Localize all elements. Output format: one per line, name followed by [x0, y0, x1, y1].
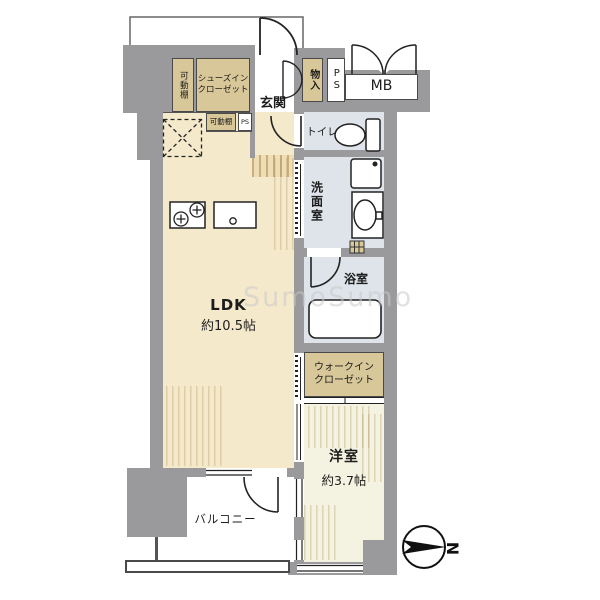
label-shoe-closet-line2: クローゼット: [197, 85, 248, 95]
wall-toilet-top: [294, 105, 390, 112]
label-western: 洋室: [304, 448, 384, 468]
label-washroom: 洗面室: [306, 162, 326, 242]
compass: [402, 526, 446, 568]
ldk-hatch-corner: [166, 386, 224, 466]
label-shoe-closet: シューズイン クローゼット: [196, 58, 250, 112]
label-walk-in-closet: ウォークイン クローゼット: [304, 352, 384, 397]
bathroom-doorway: [307, 248, 341, 257]
western-hatch-top: [308, 406, 370, 448]
label-balcony: バルコニー: [163, 510, 288, 528]
label-shelf-small: 可動棚: [206, 113, 236, 131]
label-western-size: 約3.7帖: [300, 472, 388, 490]
label-pipe-space: PS: [327, 60, 345, 100]
label-wic-line1: ウォークイン: [314, 362, 374, 373]
label-toilet: トイレ: [305, 125, 339, 141]
balcony-railing: [125, 560, 290, 573]
wall-left: [150, 105, 163, 477]
washroom-sliding-doorway: [294, 160, 304, 238]
wall-right: [384, 100, 397, 575]
label-ldk-size: 約10.5帖: [163, 318, 294, 336]
label-entrance: 玄関: [252, 94, 294, 114]
north-arrow: [402, 540, 446, 554]
label-north: N: [443, 542, 462, 555]
label-shelf-tall: 可動棚: [172, 60, 194, 110]
western-doorway: [294, 402, 304, 462]
toilet-doorway: [294, 114, 304, 148]
western-bottom-window: [297, 564, 363, 573]
wic-western-slider-strip: [304, 397, 384, 404]
ldk-hatch-right: [274, 158, 294, 250]
balcony-doorway: [252, 468, 287, 477]
front-door: [260, 18, 297, 55]
label-meter-box: MB: [345, 74, 418, 100]
ldk-window-gap: [206, 468, 252, 477]
floor-plan: 可動棚 シューズイン クローゼット 可動棚 PS 玄関 物入 PS MB トイレ…: [0, 0, 600, 600]
wic-sliding-doorway: [294, 353, 304, 402]
western-hatch-bottom: [304, 505, 340, 560]
wall-toilet-washroom: [294, 150, 390, 157]
balcony-divider-post: [155, 537, 158, 562]
wall-bathroom-wic: [294, 343, 390, 352]
label-pipe-space-small: PS: [238, 113, 252, 131]
corner-block-bottom-right: [363, 540, 397, 575]
label-shoe-closet-line1: シューズイン: [198, 74, 249, 84]
western-left-window2: [294, 540, 304, 560]
label-storage: 物入: [302, 60, 323, 100]
label-ldk: LDK: [163, 295, 294, 315]
entrance-recess-outline: [130, 17, 303, 48]
label-bathroom: 浴室: [330, 270, 382, 288]
label-wic-line2: クローゼット: [314, 375, 374, 386]
